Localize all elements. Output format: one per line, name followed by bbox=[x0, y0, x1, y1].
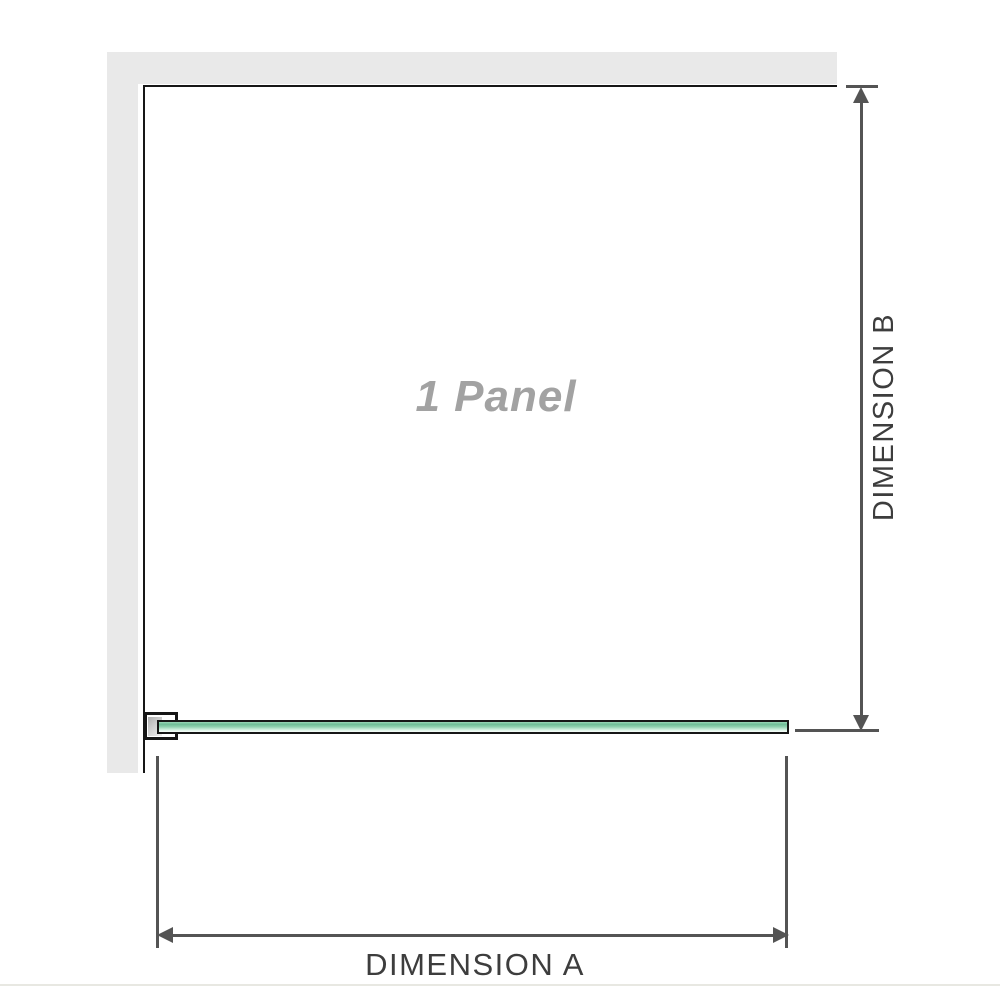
dimension-a-line bbox=[168, 934, 780, 937]
dimension-diagram: 1 Panel DIMENSION B DIMENSION A bbox=[0, 0, 1000, 1000]
arrow-up-icon bbox=[853, 87, 869, 103]
arrow-down-icon bbox=[853, 715, 869, 731]
page-bottom-rule bbox=[0, 984, 1000, 986]
dimension-b-line bbox=[860, 99, 863, 719]
wall-inner-edge-left bbox=[143, 85, 145, 773]
extension-line-left bbox=[156, 756, 159, 948]
wall-left bbox=[107, 52, 138, 773]
dimension-a-label: DIMENSION A bbox=[320, 947, 630, 983]
extension-line-right bbox=[785, 756, 788, 948]
arrow-left-icon bbox=[157, 927, 173, 943]
glass-panel bbox=[157, 720, 789, 734]
arrow-right-icon bbox=[773, 927, 789, 943]
wall-top bbox=[107, 52, 837, 84]
panel-count-label: 1 Panel bbox=[346, 372, 646, 422]
dimension-b-label: DIMENSION B bbox=[866, 267, 902, 567]
wall-inner-edge-top bbox=[143, 85, 837, 87]
